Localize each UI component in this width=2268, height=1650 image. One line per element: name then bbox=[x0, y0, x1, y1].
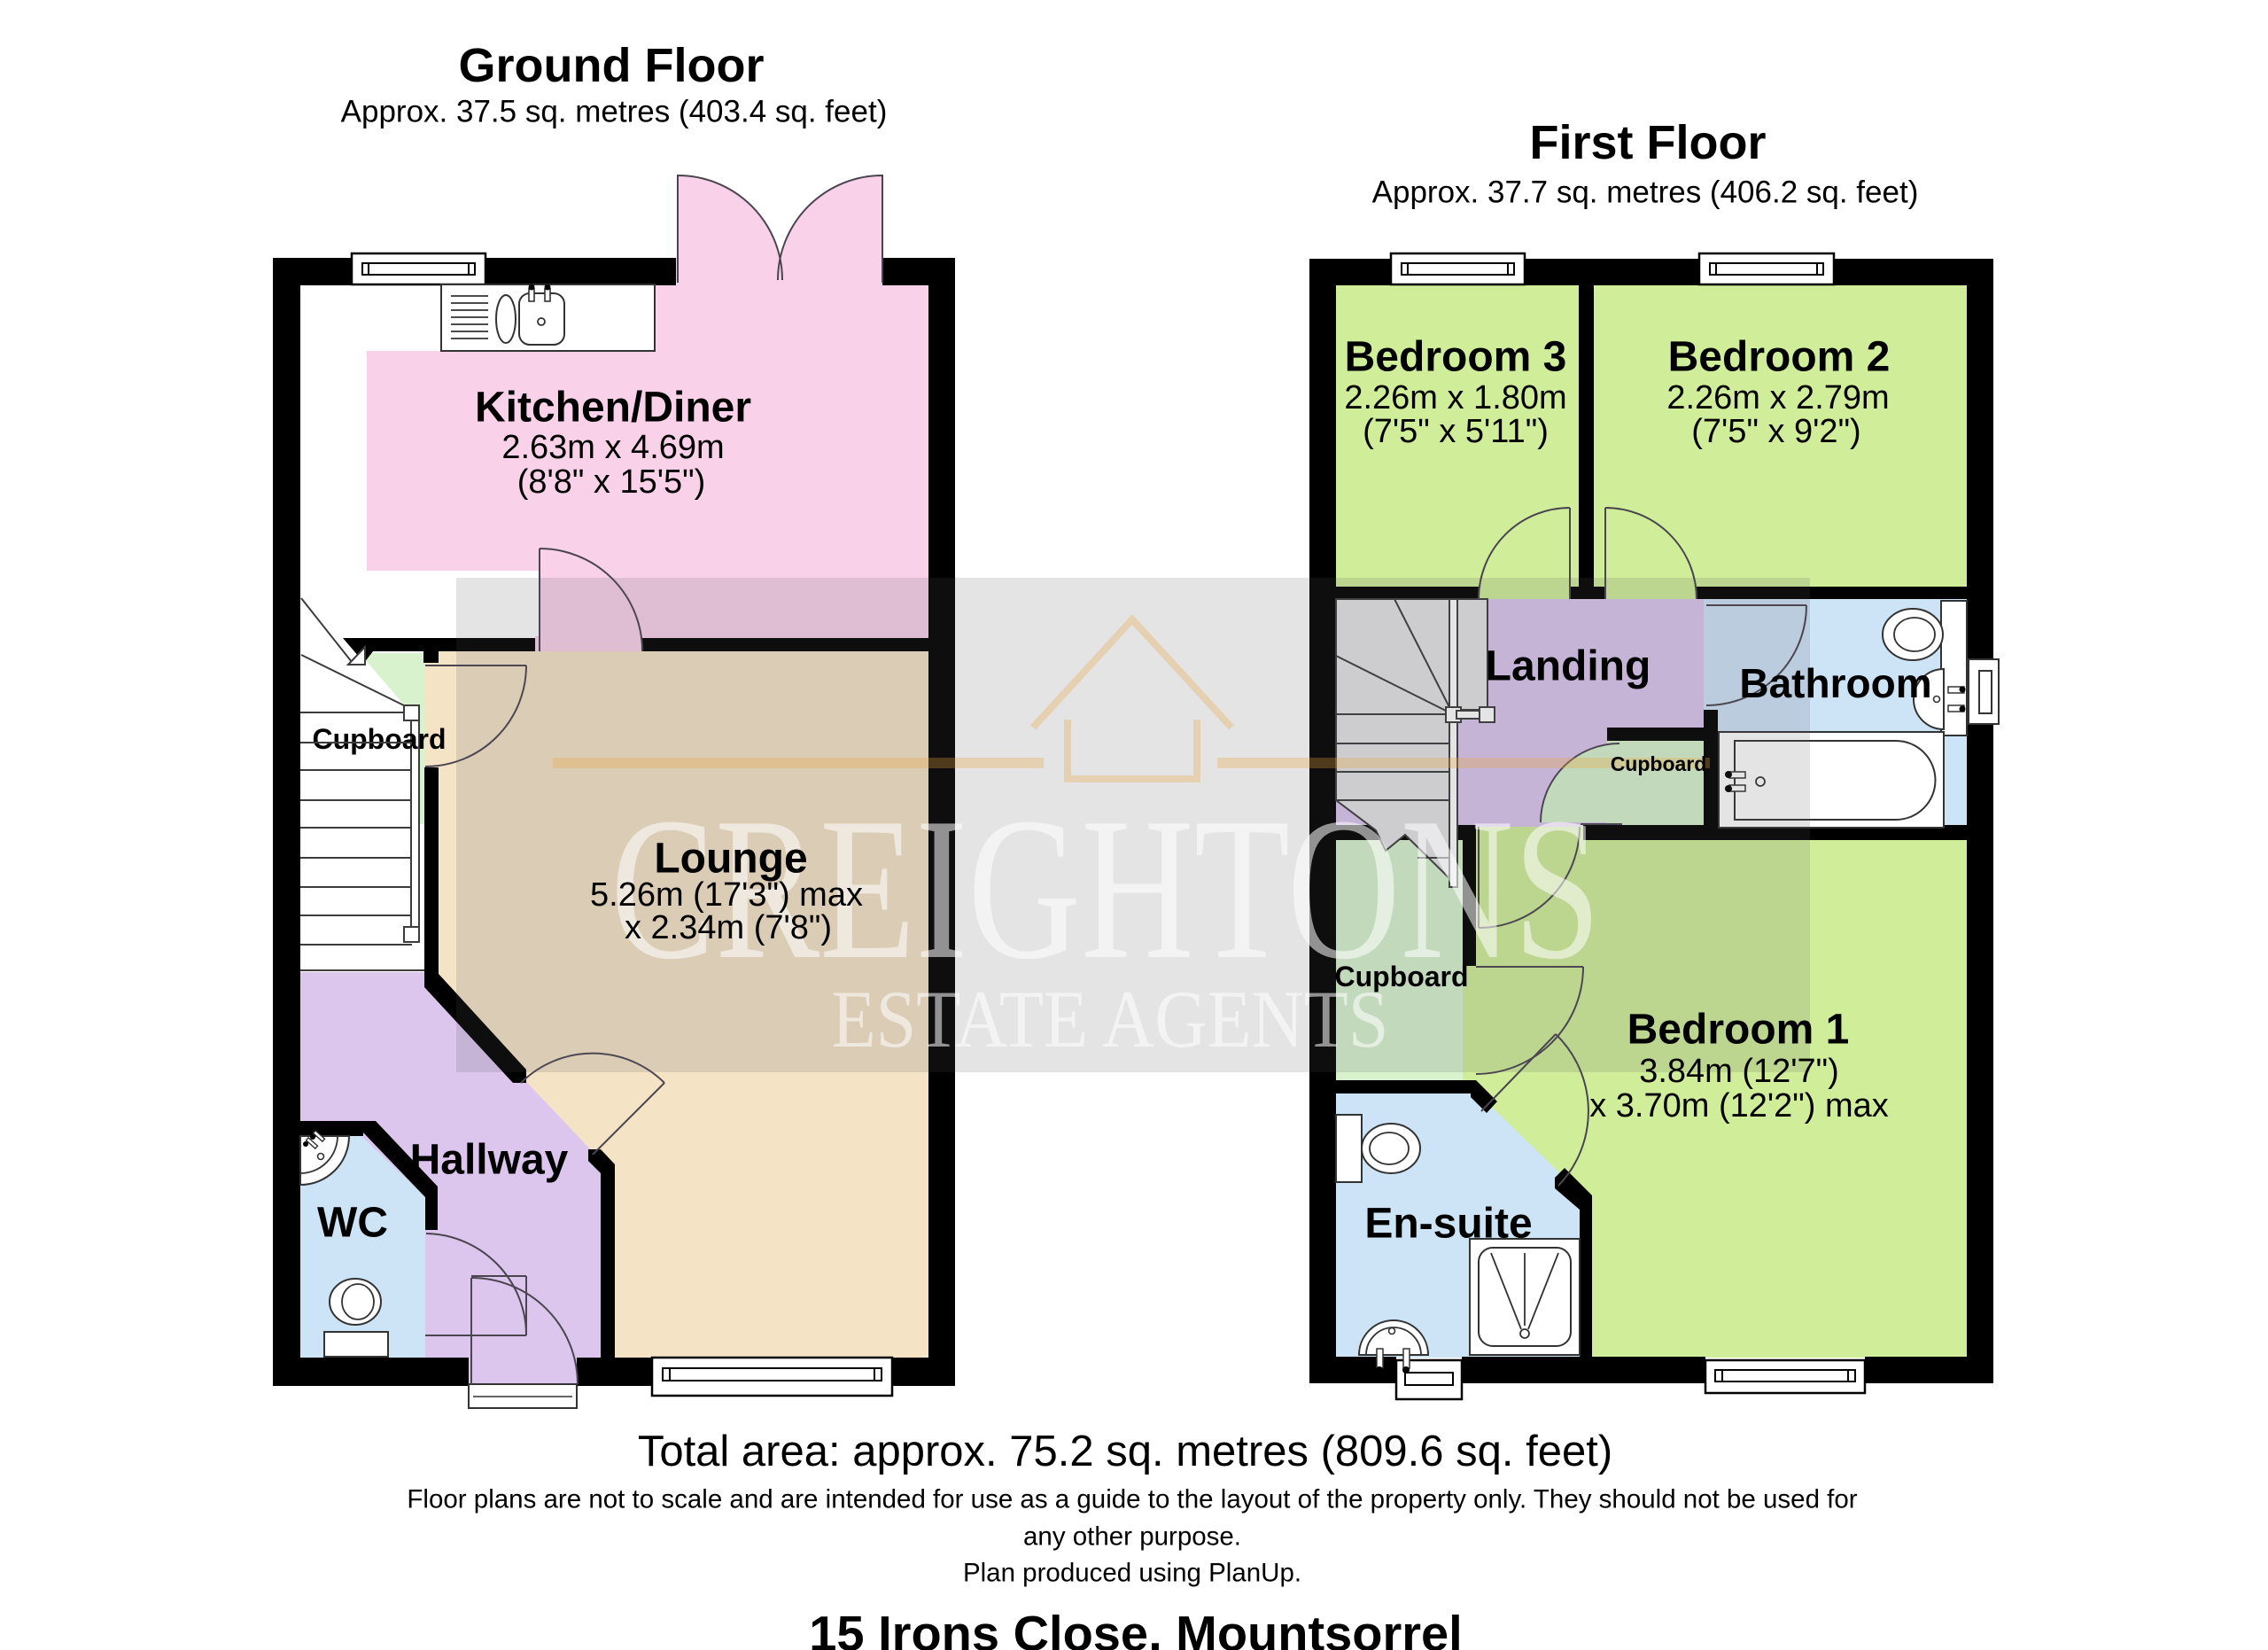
svg-text:Bedroom 3: Bedroom 3 bbox=[1345, 334, 1567, 381]
svg-text:Bathroom: Bathroom bbox=[1739, 660, 1931, 706]
svg-text:x 3.70m (12'2") max: x 3.70m (12'2") max bbox=[1589, 1087, 1889, 1125]
svg-text:15 Irons Close, Mountsorrel: 15 Irons Close, Mountsorrel bbox=[809, 1606, 1463, 1650]
svg-text:Cupboard: Cupboard bbox=[1611, 752, 1707, 775]
svg-text:Ground Floor: Ground Floor bbox=[459, 39, 765, 92]
svg-text:Kitchen/Diner: Kitchen/Diner bbox=[475, 385, 751, 432]
svg-text:5.26m (17'3") max: 5.26m (17'3") max bbox=[590, 876, 863, 914]
svg-text:(7'5" x 9'2"): (7'5" x 9'2") bbox=[1691, 413, 1860, 450]
svg-text:2.26m x 1.80m: 2.26m x 1.80m bbox=[1344, 379, 1566, 416]
svg-text:(8'8" x 15'5"): (8'8" x 15'5") bbox=[517, 463, 706, 501]
svg-text:Bedroom 2: Bedroom 2 bbox=[1668, 334, 1891, 381]
svg-text:2.63m x 4.69m: 2.63m x 4.69m bbox=[501, 429, 724, 466]
svg-text:En-suite: En-suite bbox=[1364, 1201, 1532, 1248]
svg-text:ESTATE AGENTS: ESTATE AGENTS bbox=[832, 974, 1389, 1064]
svg-text:Cupboard: Cupboard bbox=[312, 723, 446, 755]
svg-text:First Floor: First Floor bbox=[1530, 116, 1767, 169]
svg-text:Lounge: Lounge bbox=[654, 836, 807, 883]
svg-text:WC: WC bbox=[317, 1200, 388, 1247]
svg-text:2.26m x 2.79m: 2.26m x 2.79m bbox=[1666, 379, 1889, 416]
svg-text:Plan produced using PlanUp.: Plan produced using PlanUp. bbox=[963, 1559, 1301, 1588]
svg-text:any other purpose.: any other purpose. bbox=[1023, 1522, 1241, 1552]
svg-text:Landing: Landing bbox=[1486, 643, 1651, 690]
svg-text:Floor plans are not to scale a: Floor plans are not to scale and are int… bbox=[407, 1485, 1857, 1514]
svg-text:Hallway: Hallway bbox=[410, 1137, 569, 1184]
svg-text:Approx. 37.7 sq. metres (406.2: Approx. 37.7 sq. metres (406.2 sq. feet) bbox=[1372, 175, 1919, 210]
svg-text:x 2.34m (7'8"): x 2.34m (7'8") bbox=[625, 909, 832, 946]
svg-text:Approx. 37.5 sq. metres (403.4: Approx. 37.5 sq. metres (403.4 sq. feet) bbox=[341, 95, 888, 129]
svg-text:(7'5" x 5'11"): (7'5" x 5'11") bbox=[1363, 413, 1549, 450]
svg-text:Total area: approx. 75.2 sq. m: Total area: approx. 75.2 sq. metres (809… bbox=[638, 1428, 1612, 1475]
svg-text:Bedroom 1: Bedroom 1 bbox=[1627, 1007, 1850, 1054]
svg-text:3.84m (12'7"): 3.84m (12'7") bbox=[1639, 1053, 1839, 1090]
svg-text:Cupboard: Cupboard bbox=[1334, 961, 1468, 992]
